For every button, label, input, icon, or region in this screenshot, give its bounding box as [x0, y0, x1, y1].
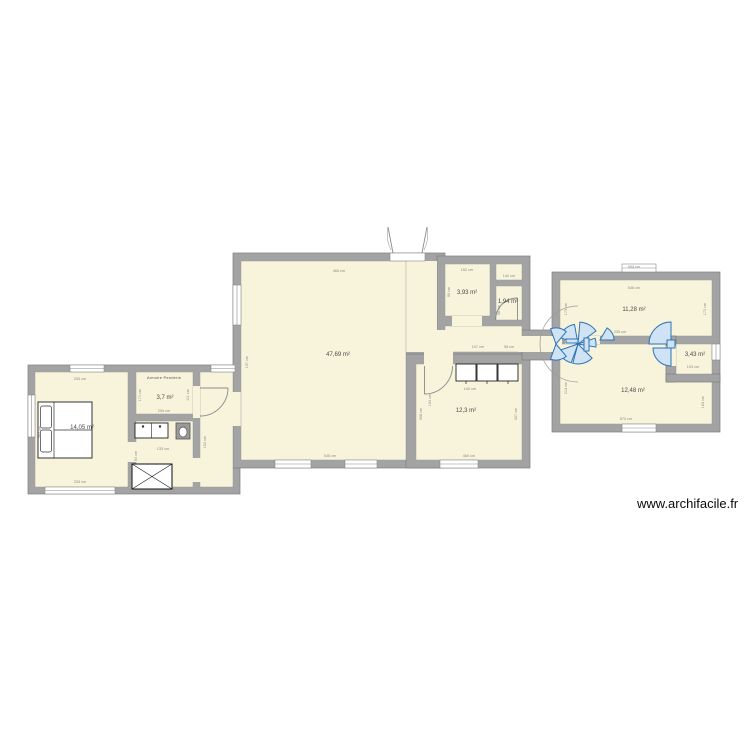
- dimension-label: 90 cm: [447, 287, 451, 297]
- dimension-label: 152 cm: [461, 268, 473, 272]
- opening-living-corridor: [431, 330, 447, 352]
- shower-icon[interactable]: [132, 464, 172, 489]
- opening-storage-corridor: [452, 316, 482, 326]
- window[interactable]: [275, 460, 311, 468]
- dimension-label: 197 cm: [245, 356, 249, 368]
- dimension-label: 206 cm: [158, 409, 170, 413]
- floor-plan-canvas: 47,69 m² 3,93 m² 1,94 m² 12,3 m² 11,28 m…: [0, 0, 750, 750]
- label-bedroom-right-top: 11,28 m²: [622, 307, 645, 313]
- window[interactable]: [233, 285, 241, 325]
- bathroom-right-wall-bottom: [666, 374, 720, 382]
- label-bedroom-left: 14,05 m²: [70, 425, 94, 431]
- dimension-label: 98 cm: [504, 345, 514, 349]
- dimension-label: 570 cm: [620, 417, 632, 421]
- opening-hall-corridor: [191, 458, 202, 482]
- window[interactable]: [28, 395, 35, 437]
- dimension-label: 235 cm: [614, 330, 626, 334]
- dimension-label: 172 cm: [703, 303, 707, 315]
- floor-plan: 47,69 m² 3,93 m² 1,94 m² 12,3 m² 11,28 m…: [0, 0, 750, 750]
- window[interactable]: [345, 460, 377, 468]
- entrance-double-door[interactable]: [387, 227, 428, 261]
- room-bathroom-right[interactable]: [676, 344, 712, 374]
- label-kitchen: 12,3 m²: [456, 408, 476, 414]
- dimension-label: 94 cm: [134, 451, 138, 461]
- dimension-label: 103 cm: [687, 365, 699, 369]
- window[interactable]: [45, 487, 115, 494]
- watermark-text: www.archifacile.fr: [636, 496, 739, 511]
- window[interactable]: [211, 365, 235, 372]
- dimension-label: 58 cm: [497, 305, 501, 315]
- dimension-label: 545 cm: [324, 454, 336, 458]
- kitchen-units-icon[interactable]: [456, 364, 518, 384]
- dimension-label: 163 cm: [701, 396, 705, 408]
- label-bedroom-right-bottom: 12,48 m²: [621, 388, 645, 394]
- window[interactable]: [70, 365, 104, 372]
- label-dressing: 3,7 m²: [156, 395, 173, 401]
- label-storage-top: 3,93 m²: [457, 290, 477, 296]
- dimension-label: 133 cm: [157, 447, 169, 451]
- dimension-label: 594 cm: [628, 265, 640, 269]
- dimension-label: 465 cm: [333, 269, 345, 273]
- dimension-label: 171 cm: [138, 389, 142, 401]
- dimension-label: 140 cm: [503, 274, 515, 278]
- dimension-label: 460 cm: [463, 454, 475, 458]
- toilet-icon[interactable]: [176, 423, 190, 439]
- dimension-label: 307 cm: [514, 408, 518, 420]
- window[interactable]: [712, 344, 720, 360]
- dimension-label: 308 cm: [419, 408, 423, 420]
- label-bathroom-right: 3,43 m²: [685, 352, 705, 358]
- dimension-label: 364 cm: [38, 426, 42, 438]
- dimension-label: 173 cm: [564, 303, 568, 315]
- window[interactable]: [622, 424, 656, 432]
- dimension-label: 213 cm: [564, 382, 568, 394]
- label-dressing-name: Armoire Penderie: [147, 375, 182, 380]
- dimension-label: 111 cm: [186, 389, 190, 401]
- dimension-label: 253 cm: [74, 480, 86, 484]
- dimension-label: 104 cm: [428, 394, 432, 406]
- label-living: 47,69 m²: [326, 352, 350, 358]
- window[interactable]: [440, 460, 478, 468]
- dimension-label: 107 cm: [472, 345, 484, 349]
- opening-kitchen-door: [424, 350, 453, 366]
- label-wc-top: 1,94 m²: [498, 299, 518, 305]
- dimension-label: 253 cm: [74, 377, 86, 381]
- dimension-label: 140 cm: [464, 387, 476, 391]
- washbasin-icon[interactable]: [135, 423, 168, 438]
- dimension-label: 546 cm: [628, 286, 640, 290]
- dimension-label: 152 cm: [203, 436, 207, 448]
- room-living[interactable]: [241, 261, 406, 460]
